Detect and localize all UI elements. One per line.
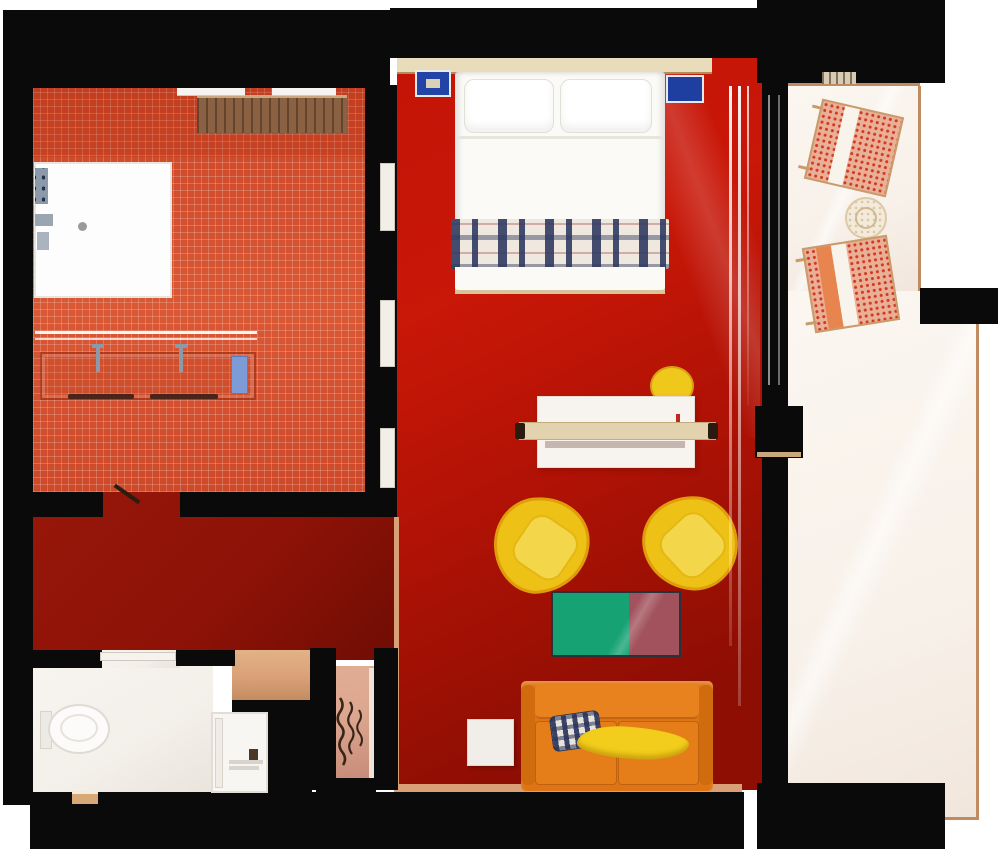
window-glass-line-1	[768, 95, 770, 385]
floor-balcony-lower	[788, 291, 978, 820]
sofa-armrest-left	[521, 685, 535, 785]
wall-wc-north-left	[30, 650, 102, 668]
bed-frame-edge	[455, 290, 665, 294]
wall-closet-right	[374, 648, 398, 790]
wardrobe-shelf	[197, 95, 347, 133]
armchair-right-cushion	[653, 506, 732, 585]
desk-plank-shadow	[545, 441, 685, 448]
floor-hallway	[33, 492, 397, 660]
balcony-edge-right-upper	[918, 86, 921, 291]
curtain-fold-2	[738, 86, 741, 706]
coffee-table-sheen	[553, 593, 679, 655]
balcony-vent	[822, 72, 856, 84]
nightstand-right	[666, 75, 704, 103]
balcony-edge-right-lower	[976, 291, 979, 820]
desk-plank-cap-left	[515, 423, 525, 439]
wall-left-lower	[3, 650, 33, 805]
patio-chair-top-stripe	[828, 106, 860, 185]
shower-stall-bench-1	[229, 760, 263, 764]
wc-threshold	[72, 791, 98, 804]
desk-plank	[519, 422, 716, 440]
pillow-right	[560, 79, 652, 133]
window-glass-line-2	[778, 95, 780, 385]
wall-top-center	[390, 8, 762, 58]
coat-hangers-icon	[332, 696, 368, 776]
floor-plan	[0, 0, 1000, 849]
nightstand-left	[415, 70, 451, 97]
curtain-fold-3	[747, 86, 749, 406]
wc-door-leaf	[100, 652, 176, 661]
patio-chair-bottom	[802, 235, 900, 333]
bed-plaid-runner	[451, 219, 669, 269]
sliding-door-panel-2	[380, 300, 395, 367]
towel-bar-1	[68, 394, 134, 399]
wall-bottom-right-block	[757, 783, 945, 849]
sliding-door-panel-1	[380, 163, 395, 231]
bed-foot-band	[455, 267, 665, 290]
shower-drain	[78, 222, 87, 231]
shower-faucet	[35, 214, 53, 226]
sofa	[521, 681, 713, 791]
window-pier-trim	[757, 452, 801, 457]
window-pier	[755, 406, 803, 458]
curtain-fold-1	[729, 86, 732, 646]
patio-table-inner-ring	[855, 207, 877, 229]
coffee-table	[551, 591, 681, 657]
vanity-rail-lower	[35, 338, 257, 340]
sofa-back-cushions	[535, 683, 699, 719]
wall-wetroom-south-left	[33, 492, 103, 517]
vanity-faucet-1	[96, 348, 100, 372]
floor-entry	[232, 650, 312, 702]
shower-handle	[37, 232, 49, 250]
shower-stall-rail	[215, 718, 223, 788]
closet-door-edge	[369, 668, 374, 778]
towel-bar-2	[150, 394, 218, 399]
wall-left	[3, 10, 33, 660]
patio-table	[845, 197, 887, 239]
side-table	[467, 719, 514, 766]
toilet	[48, 704, 110, 754]
wall-wetroom-south-right	[180, 492, 365, 517]
toilet-seat-ring	[60, 714, 98, 742]
duvet-fold-line	[455, 136, 665, 139]
wall-top-right-block	[757, 0, 945, 83]
desk-plank-cap-right	[708, 423, 718, 439]
wall-bottom-band	[30, 792, 744, 849]
nightstand-left-top	[426, 79, 440, 88]
vanity-faucet-2	[179, 348, 183, 372]
sofa-armrest-right	[699, 685, 713, 785]
sliding-door-panel-3	[380, 428, 395, 488]
shower-stall	[211, 712, 268, 793]
vanity-rail-upper	[35, 331, 257, 334]
shower-tray	[34, 162, 172, 298]
vanity-towel	[231, 356, 248, 394]
shower-stall-bench-2	[229, 766, 259, 770]
pillow-left	[464, 79, 554, 133]
armchair-left-cushion	[506, 509, 584, 587]
wall-top-left	[8, 10, 390, 88]
wall-wc-north-right	[176, 650, 235, 666]
balcony-pier-right	[920, 288, 998, 324]
vanity-counter	[40, 352, 256, 400]
shower-control-panel	[35, 168, 48, 204]
